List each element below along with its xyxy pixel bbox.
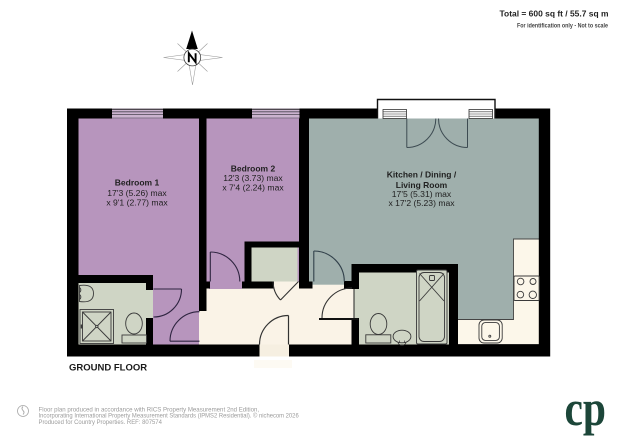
svg-text:Produced for Country Propertie: Produced for Country Properties. REF: 80… <box>39 420 163 426</box>
svg-text:Total = 600 sq ft / 55.7 sq m: Total = 600 sq ft / 55.7 sq m <box>500 9 609 19</box>
svg-text:x 17'2 (5.23) max: x 17'2 (5.23) max <box>388 198 455 208</box>
svg-text:12'3 (3.73) max: 12'3 (3.73) max <box>223 173 283 183</box>
svg-text:x 9'1 (2.77) max: x 9'1 (2.77) max <box>106 198 168 208</box>
svg-text:For identification only - Not: For identification only - Not to scale <box>517 22 608 29</box>
svg-text:17'3 (5.26) max: 17'3 (5.26) max <box>107 188 167 198</box>
svg-text:Floor plan produced in accorda: Floor plan produced in accordance with R… <box>39 407 260 413</box>
svg-text:Incorporating International Pr: Incorporating International Property Mea… <box>39 413 300 420</box>
svg-text:Kitchen / Dining /: Kitchen / Dining / <box>387 170 457 180</box>
svg-text:Bedroom 1: Bedroom 1 <box>115 177 160 187</box>
svg-text:x 7'4 (2.24) max: x 7'4 (2.24) max <box>222 183 284 193</box>
svg-text:cp: cp <box>565 380 607 436</box>
svg-text:GROUND FLOOR: GROUND FLOOR <box>69 363 147 374</box>
svg-text:Bedroom 2: Bedroom 2 <box>231 163 276 173</box>
